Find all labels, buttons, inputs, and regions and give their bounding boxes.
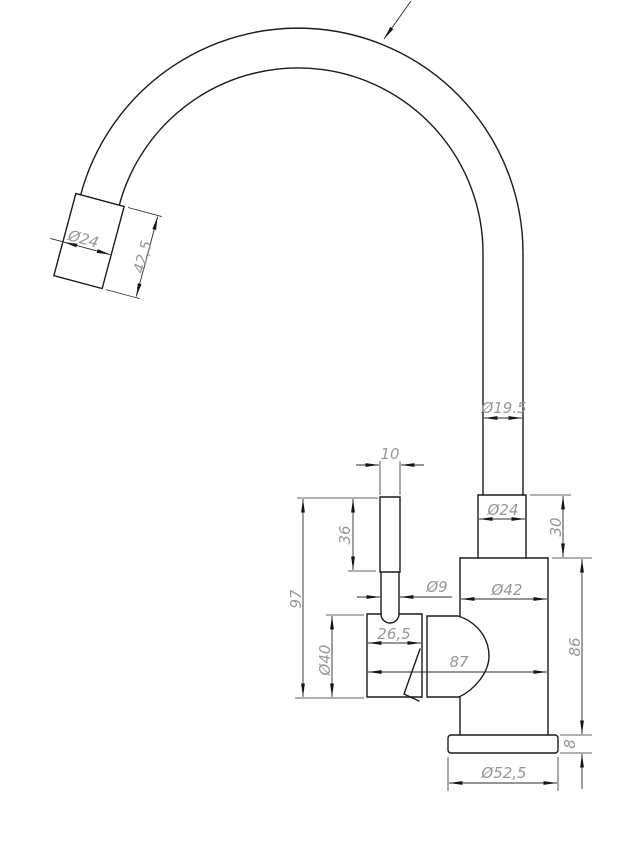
spout-aerator: Ø24 42,5	[41, 190, 162, 299]
dim-label-lever-top-width: 10	[380, 445, 399, 463]
dim-label-spout-tip-length: 42,5	[130, 239, 156, 276]
leader-line	[384, 1, 411, 39]
dim-label-spout-tube-diameter: Ø19.5	[480, 399, 526, 417]
spout-inner-arc	[119, 68, 483, 495]
handle-assembly	[367, 497, 422, 701]
dim-label-body-diameter: Ø42	[491, 581, 523, 599]
dim-label-handle-housing-diameter: Ø40	[316, 645, 334, 677]
base-plate	[448, 735, 558, 753]
faucet-technical-drawing: Ø24 42,5 10	[0, 0, 634, 866]
dim-label-neck-diameter: Ø24	[487, 501, 519, 519]
dimension-lines: 10 36 97 Ø40 Ø9 26,5 87 Ø42 Ø24	[287, 399, 592, 791]
dim-label-lever-height: 36	[336, 525, 354, 544]
dim-label-lever-stem-diameter: Ø9	[425, 578, 447, 596]
dim-label-base-plate-height: 8	[561, 739, 579, 749]
dim-label-base-plate-diameter: Ø52,5	[480, 764, 526, 782]
dim-label-handle-housing-width: 26,5	[377, 625, 410, 643]
dim-label-body-height: 86	[566, 637, 584, 656]
drawing-sheet: Ø24 42,5 10	[0, 0, 634, 866]
dim-label-handle-top-height: 97	[287, 589, 305, 609]
dim-label-neck-height: 30	[547, 517, 565, 536]
faucet-body	[427, 495, 558, 753]
lever-diagonal	[404, 649, 420, 694]
stem-socket-arc	[381, 614, 399, 623]
dim-label-overall-depth: 87	[449, 653, 469, 671]
lever-paddle	[380, 497, 400, 572]
